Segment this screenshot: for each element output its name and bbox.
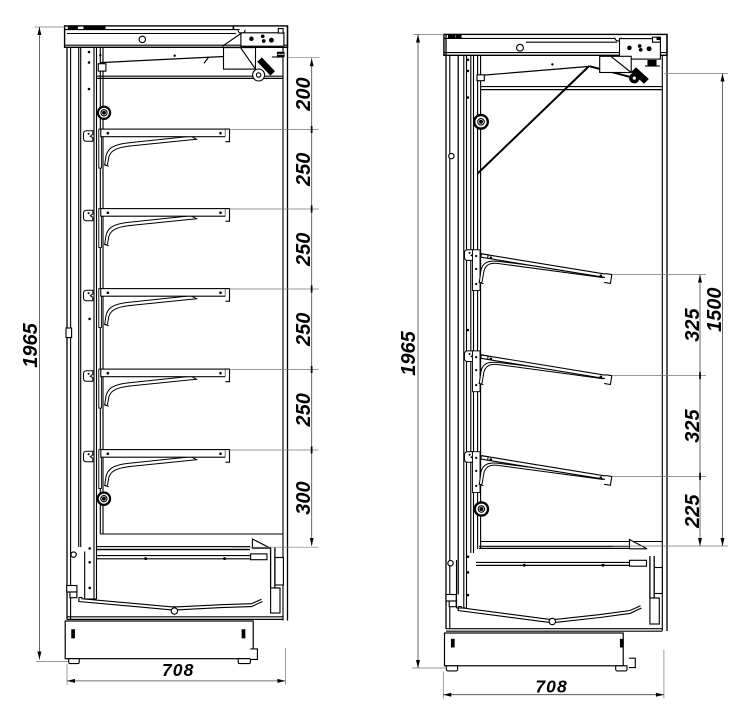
svg-text:708: 708 bbox=[162, 660, 195, 680]
svg-text:250: 250 bbox=[293, 313, 315, 347]
svg-text:200: 200 bbox=[293, 77, 315, 111]
svg-text:1965: 1965 bbox=[398, 330, 420, 375]
svg-text:250: 250 bbox=[293, 153, 315, 187]
svg-text:225: 225 bbox=[682, 494, 704, 529]
svg-text:250: 250 bbox=[293, 233, 315, 267]
svg-text:300: 300 bbox=[293, 481, 315, 514]
svg-text:325: 325 bbox=[682, 408, 704, 442]
svg-text:325: 325 bbox=[682, 307, 704, 341]
svg-text:708: 708 bbox=[535, 676, 568, 696]
svg-text:1965: 1965 bbox=[20, 322, 42, 367]
svg-text:250: 250 bbox=[293, 393, 315, 427]
svg-text:1500: 1500 bbox=[704, 288, 726, 333]
